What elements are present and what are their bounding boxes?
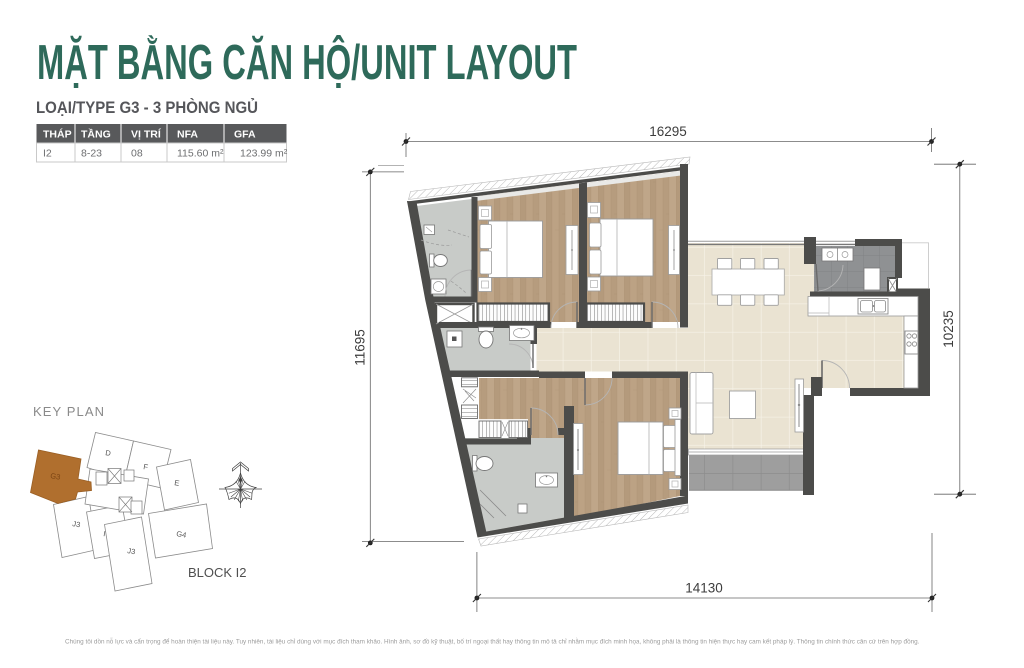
svg-text:TẦNG: TẦNG — [81, 128, 111, 141]
svg-text:J3: J3 — [72, 519, 81, 529]
svg-text:8-23: 8-23 — [81, 148, 102, 160]
svg-text:16295: 16295 — [649, 124, 687, 139]
svg-text:123.99 m²: 123.99 m² — [240, 148, 288, 160]
svg-text:08: 08 — [131, 148, 143, 160]
svg-text:BLOCK I2: BLOCK I2 — [188, 565, 247, 580]
svg-text:GFA: GFA — [234, 129, 256, 141]
svg-text:10235: 10235 — [941, 310, 956, 348]
svg-text:14130: 14130 — [685, 581, 723, 596]
svg-text:G3: G3 — [50, 471, 61, 482]
svg-text:VỊ TRÍ: VỊ TRÍ — [131, 128, 162, 141]
svg-text:Chúng tôi dồn nỗ lực và cẩn tr: Chúng tôi dồn nỗ lực và cẩn trọng để hoà… — [65, 637, 920, 646]
svg-text:MẶT BẰNG CĂN HỘ/UNIT LAYOUT: MẶT BẰNG CĂN HỘ/UNIT LAYOUT — [37, 35, 577, 90]
svg-text:THÁP: THÁP — [43, 128, 72, 141]
svg-text:J3: J3 — [127, 546, 136, 556]
svg-text:I2: I2 — [43, 148, 52, 160]
svg-text:115.60 m²: 115.60 m² — [177, 148, 224, 160]
svg-text:NFA: NFA — [177, 129, 198, 141]
svg-text:KEY PLAN: KEY PLAN — [33, 404, 105, 419]
svg-text:G4: G4 — [176, 529, 187, 540]
svg-text:11695: 11695 — [353, 329, 368, 366]
svg-text:LOẠI/TYPE G3 - 3 PHÒNG NGỦ: LOẠI/TYPE G3 - 3 PHÒNG NGỦ — [36, 98, 258, 117]
